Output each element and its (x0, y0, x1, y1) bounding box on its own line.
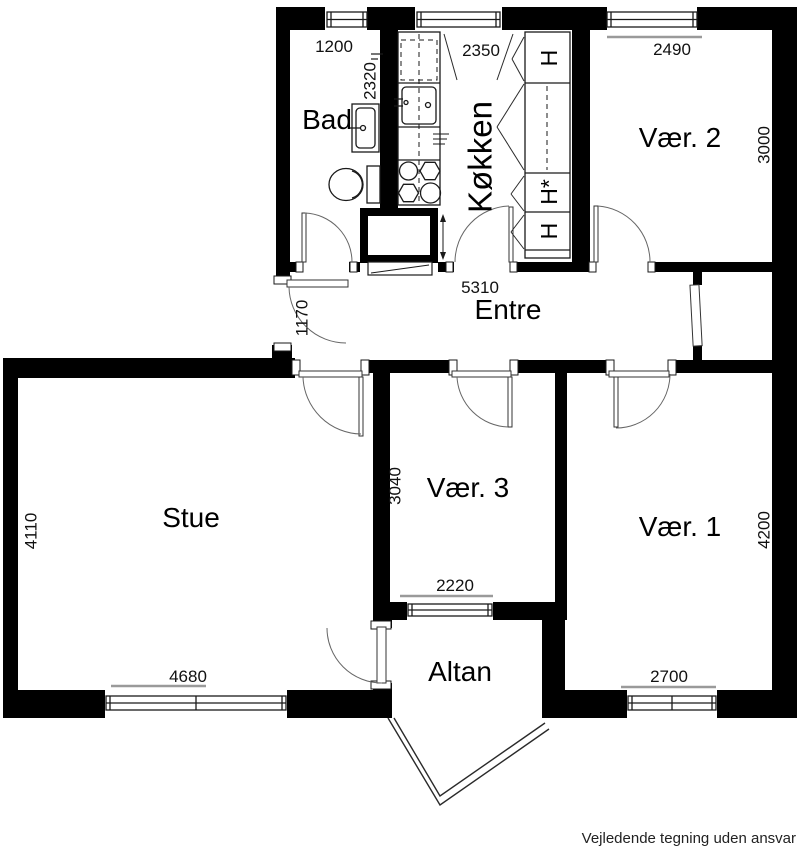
bathroom-sink-icon (350, 104, 379, 152)
dim-vaer2-width: 2490 (653, 40, 691, 59)
dim-entre-niche: 1170 (293, 300, 312, 337)
entre-closet-door (690, 285, 702, 346)
stue-door (299, 371, 363, 436)
dim-stue-window: 4680 (169, 667, 207, 686)
dim-vaer1-window: 2700 (650, 667, 688, 686)
kitchen-door (455, 206, 513, 262)
cabinet-label-1: H (536, 50, 562, 67)
vaer3-door (452, 371, 512, 427)
dim-bad-width: 1200 (315, 37, 353, 56)
dim-stue-depth: 4110 (22, 513, 41, 550)
room-label-kokken: Køkken (462, 101, 499, 213)
dim-bad-depth: 2320 (361, 62, 380, 100)
floor-plan-drawing: Bad Køkken Vær. 2 Entre Stue Vær. 3 Vær.… (0, 0, 800, 852)
room-label-vaer1: Vær. 1 (639, 511, 721, 542)
room-label-stue: Stue (162, 502, 220, 533)
dim-entre-width: 5310 (461, 278, 499, 297)
room-label-vaer2: Vær. 2 (639, 122, 721, 153)
balcony-railing (388, 718, 549, 805)
room-label-altan: Altan (428, 656, 492, 687)
toilet-icon (329, 166, 380, 203)
vaer2-window (607, 12, 697, 27)
dim-vaer3-depth: 3040 (386, 467, 405, 505)
bad-door (302, 213, 352, 262)
vaer1-window (628, 696, 716, 710)
altan-door (327, 627, 386, 683)
cabinet-label-2: H* (536, 179, 562, 205)
entre-closet (360, 208, 438, 275)
floorplan-page: Bad Køkken Vær. 2 Entre Stue Vær. 3 Vær.… (0, 0, 800, 852)
vaer3-window (408, 604, 492, 616)
stue-window (106, 696, 286, 710)
bad-window (327, 12, 367, 27)
vaer2-door (594, 206, 650, 262)
room-label-bad: Bad (302, 104, 352, 135)
dim-kokken-width: 2350 (462, 41, 500, 60)
cabinet-label-3: H (536, 223, 562, 240)
vaer1-door (609, 371, 670, 428)
dim-vaer3-window: 2220 (436, 576, 474, 595)
room-label-entre: Entre (475, 294, 542, 325)
disclaimer-text: Vejledende tegning uden ansvar (582, 830, 796, 847)
cabinet-depth-arrow (440, 214, 446, 260)
dim-vaer2-depth: 3000 (755, 126, 774, 164)
dim-vaer1-depth: 4200 (755, 511, 774, 549)
room-label-vaer3: Vær. 3 (427, 472, 509, 503)
kitchen-window (417, 12, 500, 27)
